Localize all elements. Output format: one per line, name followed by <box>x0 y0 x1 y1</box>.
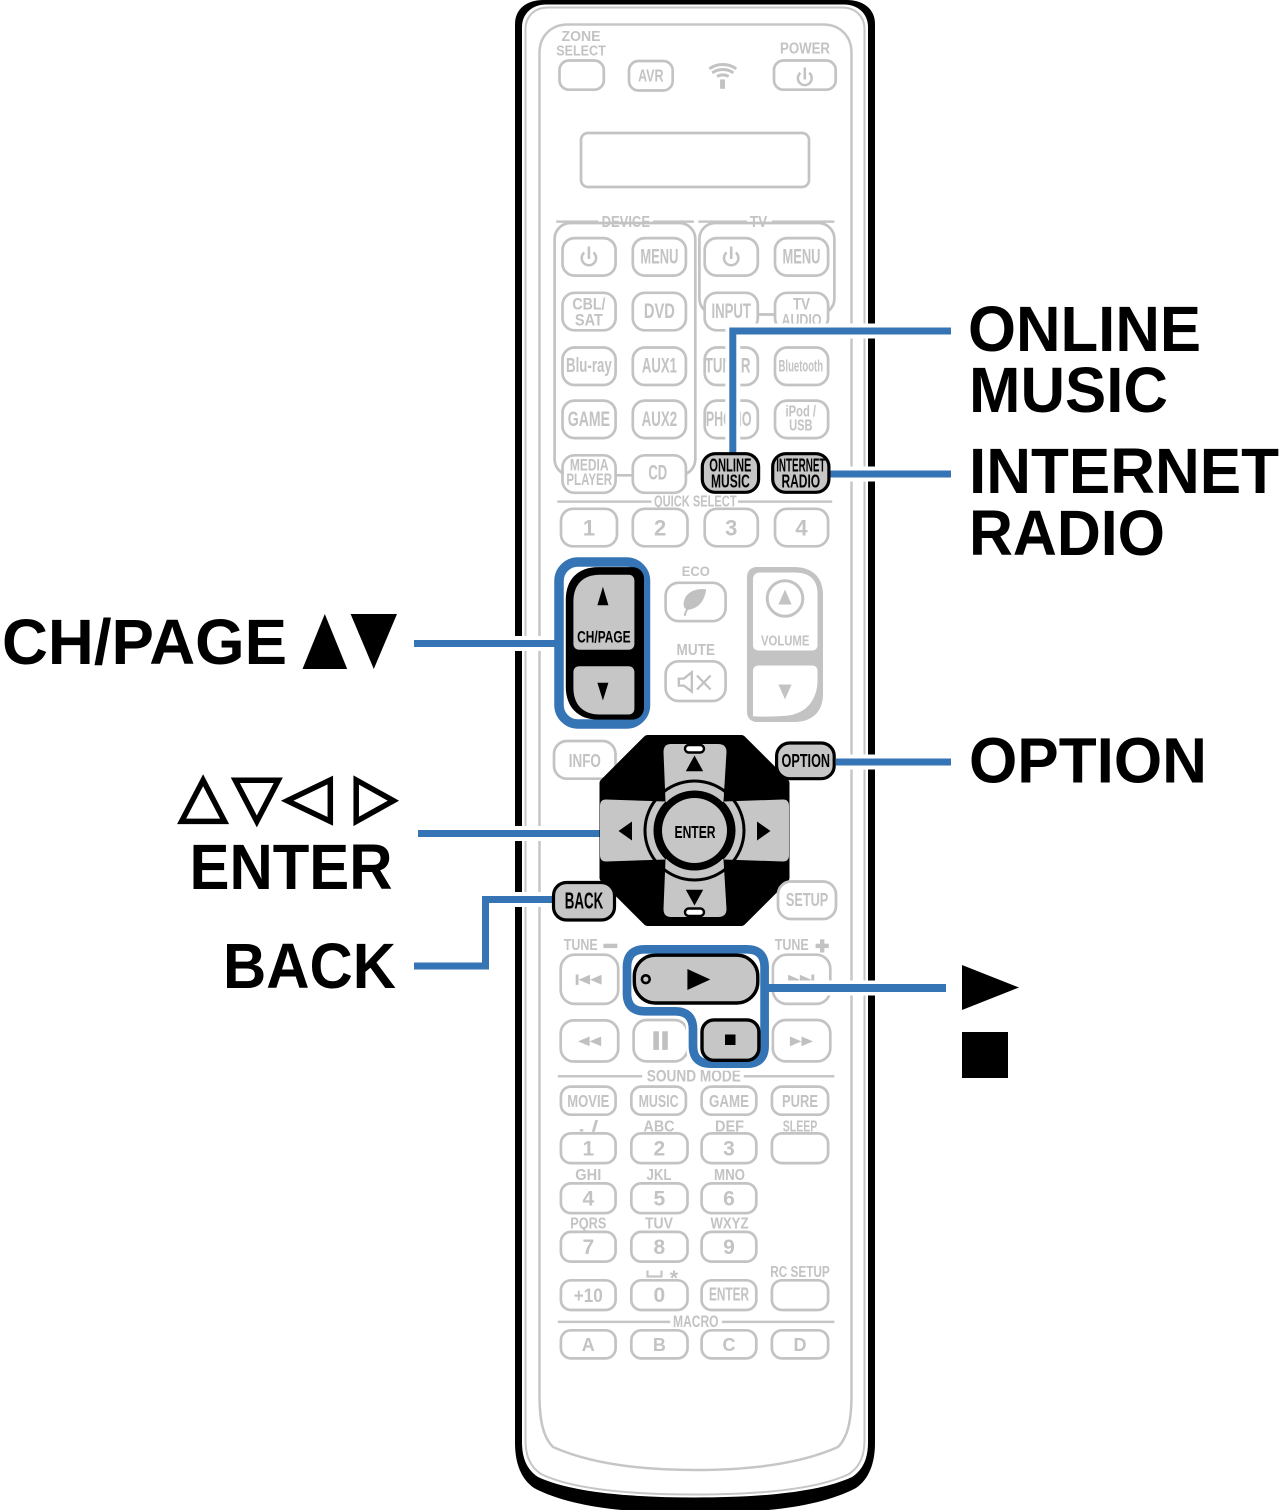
svg-text:Bluetooth: Bluetooth <box>779 357 824 376</box>
svg-text:MNO: MNO <box>714 1167 745 1184</box>
svg-text:INFO: INFO <box>569 750 601 771</box>
svg-text:SAT: SAT <box>575 312 603 330</box>
svg-text:C: C <box>723 1335 736 1355</box>
svg-text:CH/PAGE: CH/PAGE <box>2 606 287 678</box>
svg-text:AUX1: AUX1 <box>642 354 677 378</box>
svg-text:GHI: GHI <box>575 1167 601 1184</box>
svg-text:MACRO: MACRO <box>673 1313 719 1331</box>
svg-text:PURE: PURE <box>782 1091 818 1111</box>
svg-text:MUSIC: MUSIC <box>711 472 750 492</box>
svg-text:Blu-ray: Blu-ray <box>566 355 612 377</box>
svg-text:RADIO: RADIO <box>782 472 821 492</box>
svg-text:ECO: ECO <box>682 564 710 579</box>
svg-text:2: 2 <box>654 516 666 541</box>
svg-text:D: D <box>794 1335 807 1355</box>
svg-text:RADIO: RADIO <box>969 497 1165 569</box>
svg-text:4: 4 <box>795 516 808 541</box>
svg-text:OPTION: OPTION <box>969 725 1207 797</box>
svg-text:POWER: POWER <box>780 41 830 58</box>
svg-text:5: 5 <box>654 1188 666 1211</box>
svg-text:WXYZ: WXYZ <box>711 1216 749 1233</box>
svg-text:RC SETUP: RC SETUP <box>770 1264 830 1281</box>
svg-text:GAME: GAME <box>568 407 610 431</box>
svg-text:MUSIC: MUSIC <box>639 1091 679 1111</box>
svg-text:USB: USB <box>789 418 812 435</box>
svg-text:ENTER: ENTER <box>675 822 716 842</box>
svg-text:SELECT: SELECT <box>556 44 606 60</box>
svg-text:PLAYER: PLAYER <box>566 471 612 489</box>
svg-text:3: 3 <box>723 1138 735 1161</box>
svg-text:+10: +10 <box>574 1286 603 1307</box>
svg-text:4: 4 <box>582 1188 594 1211</box>
svg-text:CH/PAGE: CH/PAGE <box>577 629 631 647</box>
svg-text:0: 0 <box>654 1284 666 1307</box>
svg-text:8: 8 <box>654 1236 666 1259</box>
svg-text:INPUT: INPUT <box>711 299 751 323</box>
svg-text:3: 3 <box>725 516 737 541</box>
svg-text:9: 9 <box>723 1236 735 1259</box>
svg-text:A: A <box>582 1335 595 1355</box>
svg-text:MOVIE: MOVIE <box>567 1091 609 1111</box>
svg-text:ENTER: ENTER <box>190 831 393 903</box>
svg-text:ENTER: ENTER <box>709 1284 749 1305</box>
svg-text:MUTE: MUTE <box>677 642 716 659</box>
svg-text:TUV: TUV <box>645 1216 674 1233</box>
svg-text:TUNE: TUNE <box>775 937 809 954</box>
svg-text:AUX2: AUX2 <box>642 407 678 431</box>
svg-text:PQRS: PQRS <box>570 1216 606 1233</box>
svg-text:MENU: MENU <box>640 245 678 269</box>
svg-text:2: 2 <box>654 1138 666 1161</box>
svg-text:BACK: BACK <box>565 888 604 914</box>
svg-text:BACK: BACK <box>223 930 396 1002</box>
svg-text:1: 1 <box>582 1138 594 1161</box>
svg-text:B: B <box>653 1335 666 1355</box>
svg-text:1: 1 <box>583 516 595 541</box>
svg-text:GAME: GAME <box>709 1091 749 1111</box>
svg-text:TUNE: TUNE <box>564 937 598 954</box>
svg-text:VOLUME: VOLUME <box>761 634 810 650</box>
svg-text:JKL: JKL <box>647 1167 672 1184</box>
svg-text:6: 6 <box>723 1188 735 1211</box>
svg-text:OPTION: OPTION <box>782 751 831 771</box>
svg-text:MENU: MENU <box>783 245 821 269</box>
svg-text:CD: CD <box>648 461 667 485</box>
svg-text:7: 7 <box>582 1236 594 1259</box>
svg-text:AVR: AVR <box>638 66 664 86</box>
svg-text:MUSIC: MUSIC <box>969 354 1168 426</box>
svg-text:DVD: DVD <box>644 299 675 323</box>
svg-text:SETUP: SETUP <box>786 890 828 910</box>
